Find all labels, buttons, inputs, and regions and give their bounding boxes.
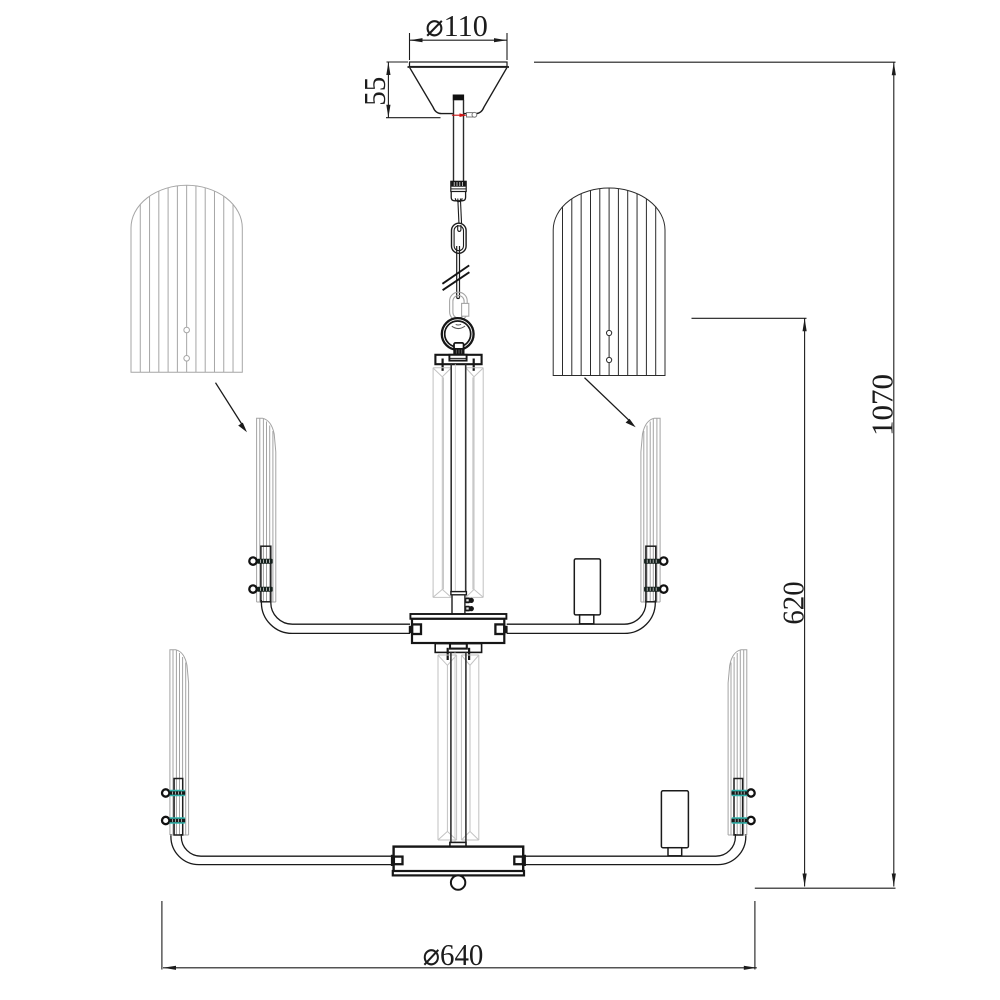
svg-text:⌀640: ⌀640	[423, 937, 484, 972]
svg-text:620: 620	[776, 581, 811, 624]
svg-text:1070: 1070	[864, 374, 899, 436]
svg-text:⌀110: ⌀110	[425, 8, 488, 43]
svg-text:55: 55	[357, 77, 392, 106]
